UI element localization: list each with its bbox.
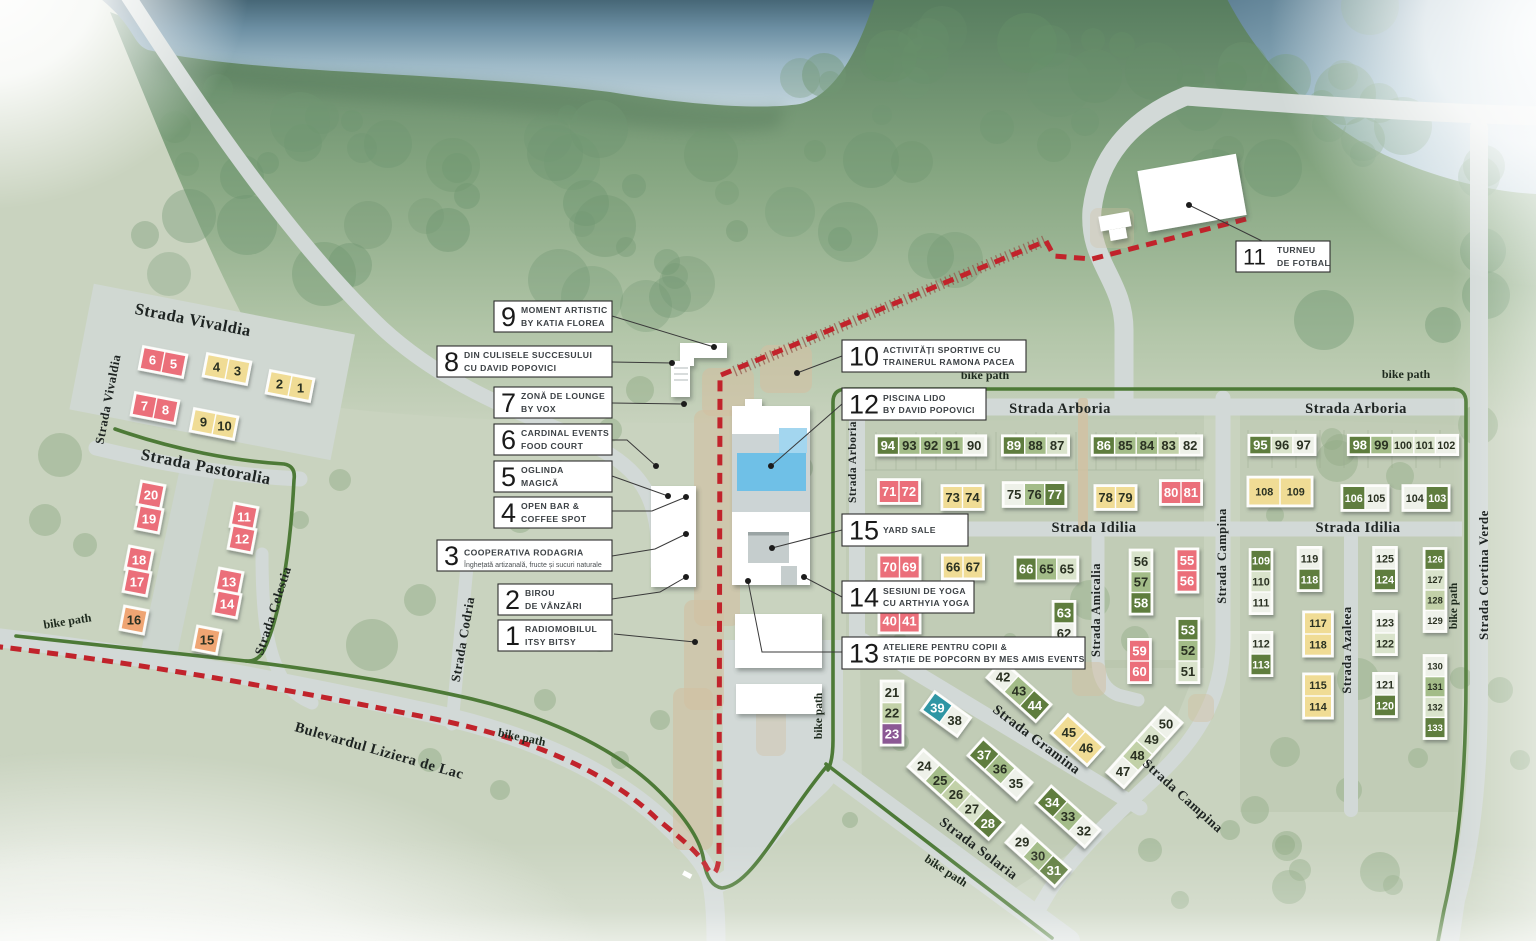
- svg-text:7: 7: [141, 399, 148, 414]
- svg-text:17: 17: [130, 575, 144, 590]
- svg-text:83: 83: [1161, 438, 1175, 453]
- svg-text:120: 120: [1376, 700, 1394, 712]
- svg-text:15: 15: [849, 516, 879, 546]
- svg-text:bike path: bike path: [1382, 367, 1431, 381]
- svg-text:119: 119: [1301, 554, 1318, 566]
- svg-text:109: 109: [1287, 486, 1305, 498]
- svg-text:108: 108: [1255, 486, 1273, 498]
- svg-text:98: 98: [1353, 438, 1367, 453]
- svg-text:73: 73: [945, 490, 959, 505]
- svg-text:130: 130: [1427, 662, 1443, 672]
- svg-text:44: 44: [1028, 698, 1043, 713]
- svg-text:9: 9: [200, 415, 207, 430]
- svg-text:89: 89: [1007, 438, 1021, 453]
- svg-text:23: 23: [885, 727, 899, 742]
- svg-text:118: 118: [1309, 640, 1326, 652]
- svg-text:37: 37: [977, 747, 991, 762]
- svg-text:20: 20: [144, 488, 158, 503]
- svg-text:133: 133: [1427, 723, 1443, 733]
- svg-text:72: 72: [902, 484, 916, 499]
- svg-text:124: 124: [1376, 574, 1394, 586]
- svg-text:48: 48: [1130, 748, 1144, 763]
- svg-text:CARDINAL EVENTS: CARDINAL EVENTS: [521, 428, 609, 438]
- svg-text:12: 12: [235, 532, 249, 547]
- svg-text:Strada Idilia: Strada Idilia: [1315, 520, 1400, 536]
- svg-text:81: 81: [1184, 485, 1198, 500]
- svg-text:82: 82: [1183, 438, 1197, 453]
- svg-text:ATELIERE PENTRU COPII &: ATELIERE PENTRU COPII &: [883, 642, 1007, 652]
- svg-text:bike path: bike path: [1448, 582, 1460, 629]
- svg-text:DE FOTBAL: DE FOTBAL: [1277, 258, 1330, 268]
- svg-text:59: 59: [1132, 643, 1146, 658]
- svg-text:Strada Idilia: Strada Idilia: [1051, 520, 1136, 536]
- svg-text:109: 109: [1252, 556, 1270, 568]
- svg-text:1: 1: [505, 621, 520, 651]
- svg-text:63: 63: [1057, 605, 1071, 620]
- svg-text:41: 41: [902, 614, 916, 629]
- svg-text:80: 80: [1164, 485, 1178, 500]
- svg-text:BY KATIA FLOREA: BY KATIA FLOREA: [521, 318, 605, 328]
- svg-text:43: 43: [1012, 684, 1026, 699]
- svg-text:OGLINDA: OGLINDA: [521, 465, 564, 475]
- svg-text:121: 121: [1376, 680, 1394, 692]
- svg-text:39: 39: [930, 700, 944, 715]
- svg-text:FOOD COURT: FOOD COURT: [521, 441, 584, 451]
- svg-text:13: 13: [222, 575, 236, 590]
- svg-text:25: 25: [933, 773, 947, 788]
- svg-text:Strada Cortina Verde: Strada Cortina Verde: [1476, 510, 1491, 640]
- svg-text:112: 112: [1252, 639, 1269, 651]
- svg-text:66: 66: [1019, 562, 1033, 577]
- svg-text:58: 58: [1134, 596, 1148, 611]
- svg-text:42: 42: [996, 669, 1010, 684]
- svg-text:75: 75: [1007, 487, 1021, 502]
- svg-text:RADIOMOBILUL: RADIOMOBILUL: [525, 624, 597, 634]
- svg-text:CU DAVID POPOVICI: CU DAVID POPOVICI: [464, 363, 556, 373]
- svg-text:103: 103: [1428, 493, 1446, 505]
- svg-text:3: 3: [234, 364, 241, 379]
- svg-text:122: 122: [1376, 638, 1394, 650]
- svg-text:TRAINERUL RAMONA PACEA: TRAINERUL RAMONA PACEA: [883, 357, 1015, 367]
- svg-text:24: 24: [917, 759, 932, 774]
- svg-text:79: 79: [1118, 490, 1132, 505]
- svg-text:21: 21: [885, 685, 899, 700]
- svg-text:53: 53: [1181, 622, 1195, 637]
- svg-text:Strada Amicalia: Strada Amicalia: [1089, 563, 1103, 657]
- svg-text:101: 101: [1416, 440, 1434, 452]
- svg-text:111: 111: [1253, 597, 1270, 609]
- svg-text:56: 56: [1134, 554, 1148, 569]
- svg-text:90: 90: [967, 438, 981, 453]
- svg-text:COOPERATIVA RODAGRIA: COOPERATIVA RODAGRIA: [464, 548, 584, 558]
- svg-text:DIN CULISELE SUCCESULUI: DIN CULISELE SUCCESULUI: [464, 350, 592, 360]
- svg-text:40: 40: [882, 614, 896, 629]
- svg-text:MAGICĂ: MAGICĂ: [521, 478, 559, 488]
- svg-text:SESIUNI DE YOGA: SESIUNI DE YOGA: [883, 586, 966, 596]
- svg-text:15: 15: [200, 633, 214, 648]
- svg-text:19: 19: [142, 512, 156, 527]
- svg-text:71: 71: [882, 484, 896, 499]
- svg-text:78: 78: [1098, 490, 1112, 505]
- svg-text:7: 7: [501, 388, 516, 418]
- svg-text:BY DAVID POPOVICI: BY DAVID POPOVICI: [883, 405, 975, 415]
- svg-text:33: 33: [1061, 809, 1075, 824]
- svg-text:100: 100: [1394, 440, 1412, 452]
- svg-text:36: 36: [993, 762, 1007, 777]
- svg-text:114: 114: [1309, 702, 1326, 714]
- svg-text:ZONĂ DE LOUNGE: ZONĂ DE LOUNGE: [521, 391, 605, 401]
- svg-text:126: 126: [1427, 555, 1443, 565]
- svg-text:125: 125: [1376, 554, 1394, 566]
- svg-text:74: 74: [965, 490, 980, 505]
- svg-text:STAȚIE DE POPCORN BY MES AMIS: STAȚIE DE POPCORN BY MES AMIS EVENTS: [883, 654, 1085, 664]
- svg-text:4: 4: [501, 498, 516, 528]
- svg-text:8: 8: [162, 403, 169, 418]
- svg-text:50: 50: [1159, 716, 1173, 731]
- svg-text:bike path: bike path: [813, 692, 825, 739]
- svg-text:86: 86: [1097, 438, 1111, 453]
- svg-text:28: 28: [981, 816, 995, 831]
- svg-text:128: 128: [1427, 596, 1443, 606]
- svg-text:110: 110: [1252, 576, 1269, 588]
- svg-text:34: 34: [1045, 795, 1060, 810]
- svg-text:5: 5: [170, 357, 177, 372]
- svg-text:85: 85: [1118, 438, 1132, 453]
- svg-text:6: 6: [149, 353, 156, 368]
- svg-text:84: 84: [1140, 438, 1155, 453]
- svg-text:10: 10: [217, 419, 231, 434]
- svg-text:117: 117: [1309, 618, 1326, 630]
- svg-text:99: 99: [1374, 438, 1388, 453]
- svg-text:60: 60: [1132, 664, 1146, 679]
- svg-text:113: 113: [1252, 659, 1269, 671]
- svg-text:14: 14: [849, 583, 879, 613]
- svg-text:BIROU: BIROU: [525, 588, 555, 598]
- svg-text:Strada Campina: Strada Campina: [1215, 508, 1229, 604]
- svg-text:97: 97: [1296, 438, 1310, 453]
- svg-text:BY VOX: BY VOX: [521, 404, 556, 414]
- svg-text:OPEN BAR &: OPEN BAR &: [521, 501, 579, 511]
- svg-text:129: 129: [1427, 616, 1443, 626]
- svg-text:12: 12: [849, 390, 879, 420]
- svg-text:8: 8: [444, 347, 459, 377]
- svg-text:95: 95: [1253, 438, 1267, 453]
- svg-text:Strada Arboria: Strada Arboria: [1009, 401, 1111, 417]
- svg-text:2: 2: [276, 377, 283, 392]
- svg-text:56: 56: [1180, 574, 1194, 589]
- svg-text:COFFEE SPOT: COFFEE SPOT: [521, 514, 587, 524]
- svg-text:88: 88: [1028, 438, 1042, 453]
- svg-text:14: 14: [220, 597, 235, 612]
- svg-text:Înghețată artizanală, fructe ș: Înghețată artizanală, fructe și sucuri n…: [463, 560, 602, 569]
- svg-text:11: 11: [1243, 244, 1266, 269]
- svg-text:91: 91: [945, 438, 959, 453]
- svg-text:YARD SALE: YARD SALE: [883, 525, 936, 535]
- svg-text:127: 127: [1427, 575, 1443, 585]
- svg-text:93: 93: [902, 438, 916, 453]
- svg-text:ITSY BITSY: ITSY BITSY: [525, 637, 576, 647]
- svg-text:92: 92: [924, 438, 938, 453]
- svg-text:106: 106: [1345, 493, 1363, 505]
- svg-text:123: 123: [1376, 618, 1394, 630]
- svg-text:132: 132: [1427, 703, 1443, 713]
- svg-text:11: 11: [237, 510, 251, 525]
- svg-text:22: 22: [885, 706, 899, 721]
- svg-text:70: 70: [882, 560, 896, 575]
- svg-text:69: 69: [902, 560, 916, 575]
- svg-text:65: 65: [1060, 562, 1074, 577]
- svg-text:102: 102: [1437, 440, 1455, 452]
- svg-text:115: 115: [1309, 680, 1326, 692]
- svg-text:27: 27: [965, 802, 979, 817]
- svg-text:10: 10: [849, 342, 879, 372]
- svg-text:13: 13: [849, 639, 879, 669]
- svg-text:77: 77: [1048, 487, 1062, 502]
- svg-text:46: 46: [1079, 741, 1093, 756]
- svg-text:45: 45: [1062, 725, 1076, 740]
- svg-text:96: 96: [1275, 438, 1289, 453]
- svg-text:49: 49: [1144, 732, 1158, 747]
- svg-text:CU ARTHYIA YOGA: CU ARTHYIA YOGA: [883, 598, 970, 608]
- svg-text:105: 105: [1367, 493, 1385, 505]
- svg-text:ACTIVITĂȚI SPORTIVE CU: ACTIVITĂȚI SPORTIVE CU: [883, 345, 1001, 355]
- svg-text:Strada Arboria: Strada Arboria: [847, 421, 859, 503]
- svg-text:32: 32: [1077, 824, 1091, 839]
- svg-text:MOMENT ARTISTIC: MOMENT ARTISTIC: [521, 305, 608, 315]
- svg-text:1: 1: [297, 381, 304, 396]
- svg-text:3: 3: [444, 541, 459, 571]
- svg-text:4: 4: [213, 360, 221, 375]
- svg-text:18: 18: [132, 553, 146, 568]
- svg-text:66: 66: [946, 560, 960, 575]
- svg-text:57: 57: [1134, 575, 1148, 590]
- svg-text:9: 9: [501, 302, 516, 332]
- svg-text:131: 131: [1427, 682, 1443, 692]
- svg-text:94: 94: [881, 438, 896, 453]
- svg-text:55: 55: [1180, 553, 1194, 568]
- svg-text:76: 76: [1027, 487, 1041, 502]
- svg-text:26: 26: [949, 787, 963, 802]
- svg-text:6: 6: [501, 425, 516, 455]
- svg-text:16: 16: [127, 613, 141, 628]
- svg-text:Strada Azaleea: Strada Azaleea: [1340, 606, 1354, 693]
- svg-text:47: 47: [1116, 764, 1130, 779]
- svg-text:38: 38: [947, 713, 961, 728]
- svg-text:52: 52: [1181, 643, 1195, 658]
- svg-text:DE VÂNZĂRI: DE VÂNZĂRI: [525, 600, 582, 611]
- svg-text:5: 5: [501, 462, 516, 492]
- svg-text:104: 104: [1406, 493, 1424, 505]
- svg-text:65: 65: [1039, 562, 1053, 577]
- svg-text:67: 67: [966, 560, 980, 575]
- svg-text:PISCINA LIDO: PISCINA LIDO: [883, 393, 946, 403]
- svg-text:Strada Arboria: Strada Arboria: [1305, 401, 1407, 417]
- svg-text:118: 118: [1301, 574, 1318, 586]
- svg-text:51: 51: [1181, 664, 1195, 679]
- svg-text:2: 2: [505, 585, 520, 615]
- svg-text:TURNEU: TURNEU: [1277, 245, 1316, 255]
- svg-text:87: 87: [1050, 438, 1064, 453]
- svg-text:35: 35: [1009, 776, 1023, 791]
